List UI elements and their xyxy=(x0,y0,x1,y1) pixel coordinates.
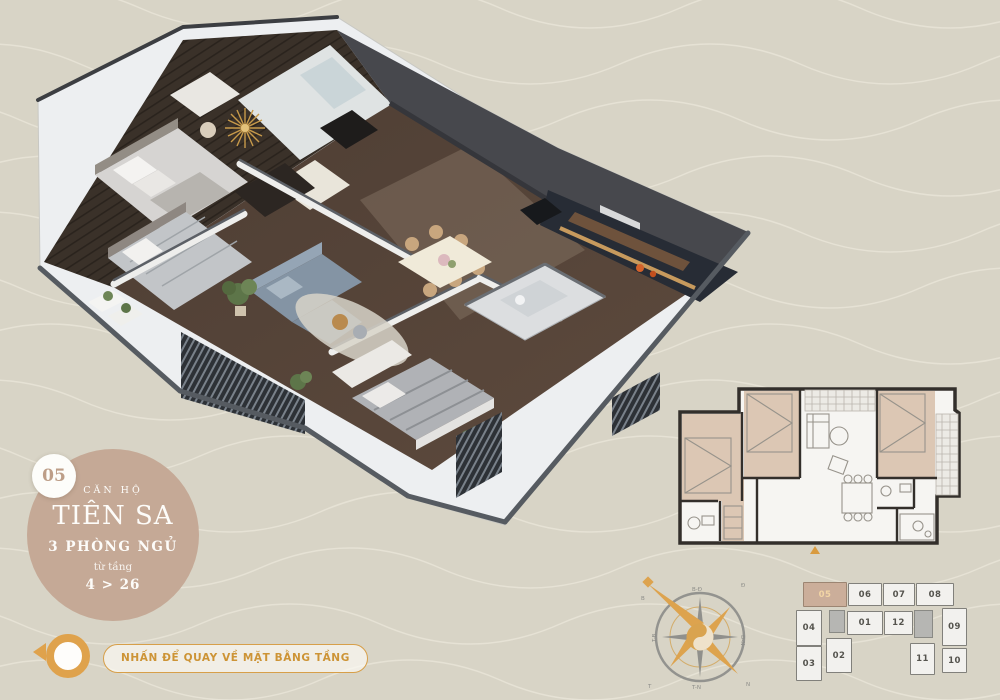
badge-unit-number: 05 xyxy=(32,454,76,498)
floorplate-unit-08[interactable]: 08 xyxy=(916,583,954,606)
floorplate-unit-11[interactable]: 11 xyxy=(910,643,935,675)
back-circle-icon[interactable] xyxy=(46,634,90,678)
badge-floors-range: 4 > 26 xyxy=(27,577,199,593)
gray-pouf xyxy=(353,325,367,339)
compass-label-bottom: T-N xyxy=(691,685,701,691)
badge-unit-name: TIÊN SA xyxy=(27,501,199,531)
compass-label-se: N xyxy=(746,682,750,688)
compass-label-ne: Đ xyxy=(741,583,745,589)
floorplate-unit-06[interactable]: 06 xyxy=(848,583,882,606)
plan-kitchen-tiles xyxy=(936,414,958,495)
floorplate-unit-05[interactable]: 05 xyxy=(803,582,847,607)
unit-info-badge: CĂN HỘ TIÊN SA 3 PHÒNG NGỦ từ tầng 4 > 2… xyxy=(27,449,199,621)
badge-floors-label: từ tầng xyxy=(27,561,199,573)
floorplate-unit-10[interactable]: 10 xyxy=(942,648,967,673)
plan-corridor xyxy=(722,478,744,541)
compass-label-right: Đ-N xyxy=(739,635,745,645)
vanity-stool xyxy=(200,122,216,138)
back-arrow-icon[interactable] xyxy=(33,643,46,661)
page: { "badge": { "unit_number": "05", "label… xyxy=(0,0,1000,700)
floorplate-unit-01[interactable]: 01 xyxy=(847,611,883,635)
floorplate-unit-12[interactable]: 12 xyxy=(884,611,913,635)
floorplate-unit-03[interactable]: 03 xyxy=(796,646,822,681)
compass-label-top: B-Đ xyxy=(692,587,702,593)
floorplate-unit-09[interactable]: 09 xyxy=(942,608,967,646)
plan-bedroom3 xyxy=(877,391,935,478)
plan-balcony xyxy=(805,390,875,411)
floorplate-unit-02[interactable]: 02 xyxy=(826,638,852,673)
floor-plan-2d xyxy=(672,376,972,561)
floorplate-core xyxy=(914,610,933,638)
compass-label-sw: T xyxy=(647,684,652,690)
badge-bedrooms: 3 PHÒNG NGỦ xyxy=(27,539,199,555)
compass-label-nw: B xyxy=(641,596,645,602)
floorplate-unit-04[interactable]: 04 xyxy=(796,610,822,646)
sunburst-decor xyxy=(225,108,265,148)
floorplate-unit-07[interactable]: 07 xyxy=(883,583,915,606)
compass-icon: Đ N T B B-Đ Đ-N T-N T-B xyxy=(640,570,760,695)
back-to-floorplan-button[interactable]: NHẤN ĐỂ QUAY VỀ MẶT BẰNG TẦNG xyxy=(103,644,368,673)
floor-plate-diagram: 050607080401120903021110 xyxy=(790,578,990,690)
entrance-marker-icon xyxy=(810,546,820,554)
gold-pouf xyxy=(332,314,348,330)
compass-label-left: T-B xyxy=(652,633,658,643)
floorplate-core xyxy=(829,610,845,633)
